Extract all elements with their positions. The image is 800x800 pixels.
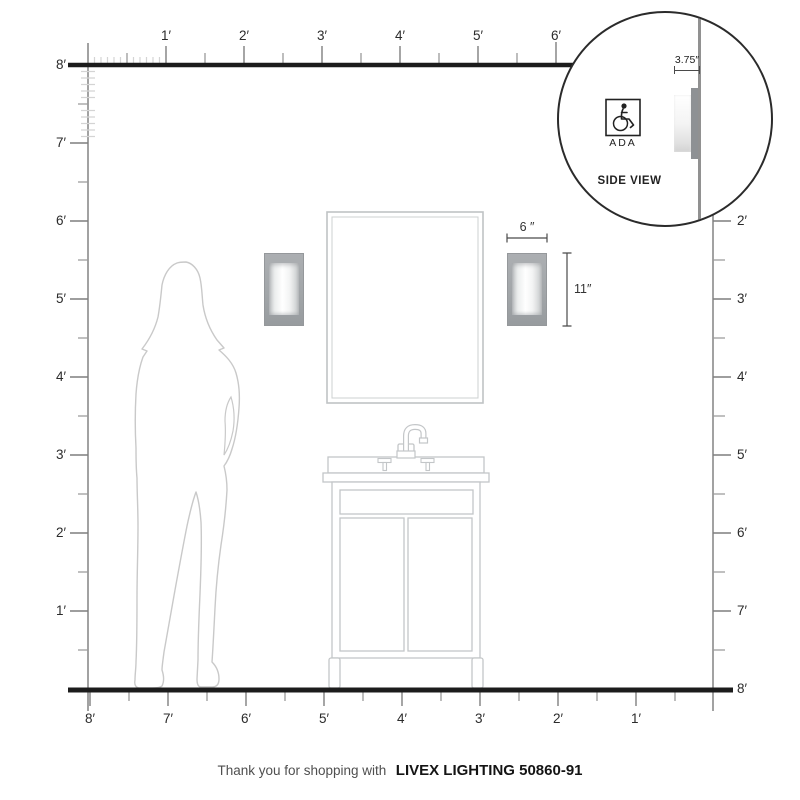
ruler-label: 2′ — [737, 213, 763, 229]
ruler-label: 5′ — [311, 711, 337, 727]
mirror — [327, 212, 483, 403]
faucet-deck — [397, 451, 415, 458]
ruler-label: 1′ — [623, 711, 649, 727]
ruler-label: 8′ — [77, 711, 103, 727]
wall-line — [698, 13, 701, 227]
ruler-label: 2′ — [231, 28, 257, 44]
woman-silhouette — [135, 262, 240, 688]
depth-dimension-tick — [674, 66, 675, 74]
footer-caption: Thank you for shopping with LIVEX LIGHTI… — [0, 762, 800, 780]
width-dimension-line — [507, 234, 547, 243]
vanity-leg-right — [472, 658, 483, 688]
ada-wheelchair-icon — [604, 98, 642, 138]
ruler-label: 6′ — [40, 213, 66, 229]
ruler-label: 4′ — [389, 711, 415, 727]
inch-ticks — [81, 57, 160, 137]
vanity-door-right — [408, 518, 472, 651]
wall-sconce-left — [264, 253, 304, 326]
ruler-label: 2′ — [40, 525, 66, 541]
ruler-label: 1′ — [40, 603, 66, 619]
ruler-label: 6′ — [543, 28, 569, 44]
depth-dimension-label: 3.75″ — [660, 54, 714, 66]
sconce-diffuser-side — [674, 95, 691, 152]
ruler-label: 5′ — [737, 447, 763, 463]
ada-label: ADA — [604, 137, 642, 149]
ruler-label: 8′ — [40, 57, 66, 73]
ruler-label: 8′ — [737, 681, 763, 697]
ruler-label: 7′ — [40, 135, 66, 151]
ruler-label: 5′ — [465, 28, 491, 44]
sconce-backplate-side — [691, 88, 698, 159]
ruler-label: 6′ — [233, 711, 259, 727]
depth-dimension-line — [674, 70, 700, 71]
ruler-label: 2′ — [545, 711, 571, 727]
width-dimension-label: 6 ″ — [505, 220, 549, 234]
height-dimension-label: 11″ — [574, 282, 591, 296]
wall-sconce-right — [507, 253, 547, 326]
vanity-countertop — [323, 473, 489, 482]
ruler-label: 1′ — [153, 28, 179, 44]
sconce-diffuser — [512, 263, 542, 315]
footer-prefix: Thank you for shopping with — [217, 763, 386, 778]
ruler-label: 5′ — [40, 291, 66, 307]
vanity-leg-left — [329, 658, 340, 688]
faucet-spout-tip — [420, 438, 428, 443]
dimension-diagram: 1′2′3′4′5′6′ 8′7′6′5′4′3′2′1′ 2′3′4′5′6′… — [0, 0, 800, 800]
ruler-label: 3′ — [309, 28, 335, 44]
ruler-label: 4′ — [387, 28, 413, 44]
ruler-label: 7′ — [737, 603, 763, 619]
ruler-label: 4′ — [40, 369, 66, 385]
ruler-label: 3′ — [737, 291, 763, 307]
sconce-diffuser — [269, 263, 299, 315]
footer-product: LIVEX LIGHTING 50860-91 — [396, 762, 583, 779]
ruler-label: 4′ — [737, 369, 763, 385]
side-view-inset: 3.75″ ADA SIDE VIEW — [557, 11, 773, 227]
vanity-door-left — [340, 518, 404, 651]
ruler-label: 6′ — [737, 525, 763, 541]
ruler-label: 7′ — [155, 711, 181, 727]
vanity-drawer — [340, 490, 473, 514]
height-dimension-line — [563, 253, 572, 326]
vanity-backsplash — [328, 457, 484, 473]
side-view-title: SIDE VIEW — [559, 175, 700, 187]
vanity-cabinet — [323, 444, 489, 688]
depth-dimension-tick — [699, 66, 700, 74]
ruler-label: 3′ — [40, 447, 66, 463]
ruler-label: 3′ — [467, 711, 493, 727]
